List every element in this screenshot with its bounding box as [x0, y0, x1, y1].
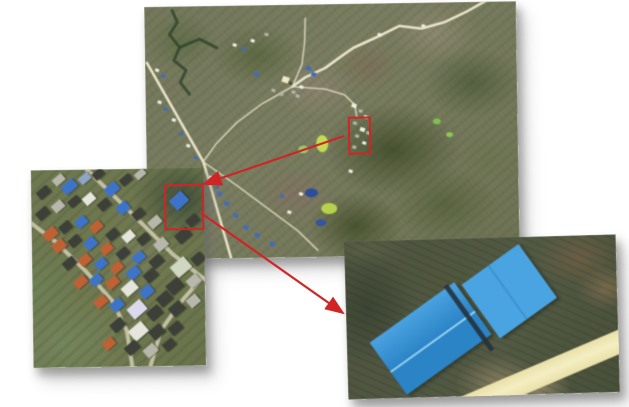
- house-roof: [109, 317, 126, 334]
- building-marker: [269, 241, 275, 246]
- building-marker: [254, 232, 260, 237]
- house-roof: [139, 284, 155, 300]
- building-marker: [250, 39, 255, 43]
- building-marker: [232, 43, 237, 47]
- house-roof: [105, 275, 121, 290]
- building-marker: [179, 132, 184, 136]
- building-marker: [280, 194, 285, 198]
- building-marker: [163, 107, 168, 111]
- building-marker: [348, 169, 353, 173]
- house-roof: [82, 192, 97, 207]
- house-roof: [162, 337, 177, 352]
- house-roof: [148, 323, 166, 340]
- building-marker: [351, 103, 357, 108]
- building-marker: [155, 68, 160, 72]
- building-marker: [224, 201, 230, 206]
- building-marker: [271, 88, 276, 92]
- building-marker: [306, 66, 312, 71]
- house-roof: [105, 227, 120, 242]
- building-marker: [254, 71, 260, 76]
- house-roof: [121, 279, 140, 297]
- house-roof: [93, 294, 109, 309]
- building-marker: [358, 109, 363, 113]
- house-roof: [78, 172, 92, 186]
- house-roof: [102, 336, 117, 351]
- house-roof: [134, 168, 147, 180]
- building-marker: [216, 191, 222, 196]
- house-roof: [115, 246, 130, 261]
- house-roof: [103, 181, 120, 198]
- house-roof: [89, 219, 104, 234]
- roi-rect-blue-building: [164, 184, 205, 231]
- house-roof: [186, 273, 202, 289]
- building-marker: [171, 118, 176, 122]
- house-roof: [97, 197, 112, 212]
- building-marker: [299, 85, 304, 89]
- building-marker: [157, 100, 162, 104]
- building-marker: [243, 225, 249, 230]
- building-marker: [241, 47, 246, 51]
- house-roof: [58, 220, 73, 235]
- house-roof: [91, 168, 105, 181]
- warehouse-ridge-line: [390, 311, 476, 373]
- house-roof: [153, 236, 169, 252]
- house-roof: [115, 200, 131, 215]
- house-roof: [77, 253, 92, 268]
- house-roof: [74, 215, 89, 230]
- house-roof: [83, 236, 99, 251]
- building-marker: [161, 74, 166, 78]
- house-roof: [110, 260, 125, 275]
- house-roof: [131, 207, 146, 222]
- house-roof: [67, 195, 81, 209]
- house-roof: [99, 241, 114, 256]
- building-marker: [287, 210, 292, 214]
- house-roof: [35, 206, 51, 221]
- building-marker: [377, 33, 382, 37]
- closeup-features: [344, 234, 620, 400]
- building-marker: [233, 213, 239, 218]
- house-roof: [168, 300, 186, 317]
- house-roof: [125, 265, 141, 281]
- house-roof: [131, 250, 146, 265]
- house-roof: [136, 232, 151, 247]
- building-marker: [208, 175, 213, 179]
- house-roof: [119, 173, 133, 187]
- house-roof: [62, 256, 78, 271]
- building-marker: [264, 32, 269, 36]
- house-roof: [170, 256, 193, 278]
- building-marker: [193, 156, 198, 160]
- building-marker: [295, 94, 300, 98]
- house-roof: [121, 229, 136, 244]
- house-roof: [89, 272, 104, 287]
- house-roof: [93, 256, 108, 271]
- roi-rect-village-cluster: [348, 116, 372, 154]
- house-roof: [73, 274, 89, 289]
- house-roof: [146, 304, 164, 321]
- house-roof: [124, 339, 141, 356]
- house-roof: [128, 321, 149, 342]
- house-roof: [142, 343, 158, 359]
- village-inset-image: [31, 168, 207, 368]
- figure-canvas: [0, 0, 629, 407]
- building-marker: [311, 72, 317, 77]
- building-marker: [299, 192, 304, 196]
- building-marker: [421, 24, 426, 28]
- building-marker: [214, 185, 219, 189]
- house-roof: [167, 320, 183, 336]
- building-marker: [186, 144, 191, 148]
- warehouse-closeup-image: [344, 234, 620, 400]
- house-roof: [109, 297, 125, 313]
- house-roof: [36, 185, 52, 200]
- house-roof: [190, 251, 206, 266]
- house-roof: [186, 293, 202, 308]
- house-roof: [147, 214, 163, 229]
- house-roof: [51, 238, 67, 254]
- warehouse-seam-line: [487, 265, 527, 320]
- building-marker: [288, 81, 293, 85]
- house-roof: [67, 234, 82, 249]
- house-roof: [142, 268, 158, 284]
- house-roof: [51, 199, 66, 214]
- house-roof: [126, 299, 147, 320]
- building-marker: [279, 92, 284, 96]
